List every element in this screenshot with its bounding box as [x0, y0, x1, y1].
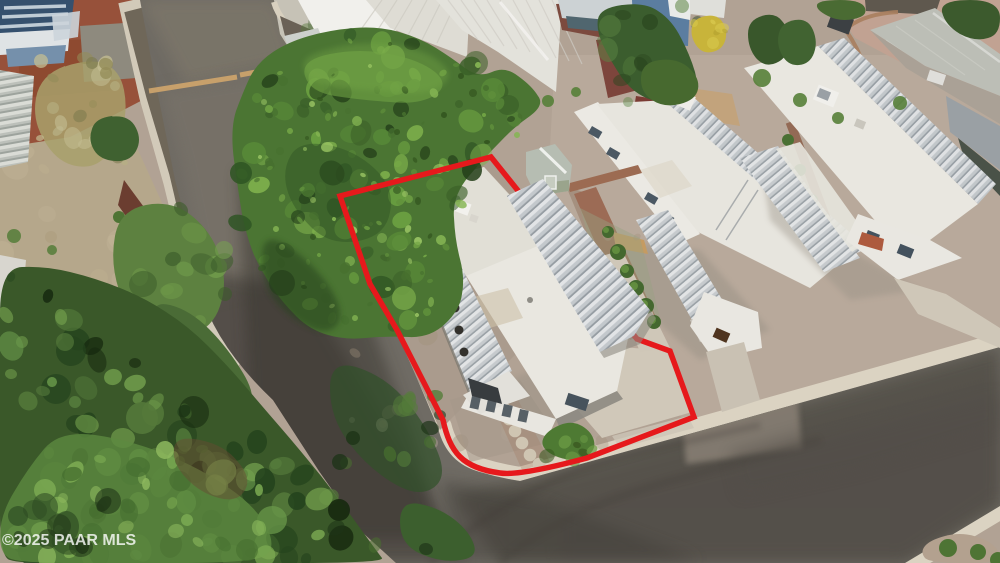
svg-text:©2025 PAAR MLS: ©2025 PAAR MLS [2, 532, 137, 549]
